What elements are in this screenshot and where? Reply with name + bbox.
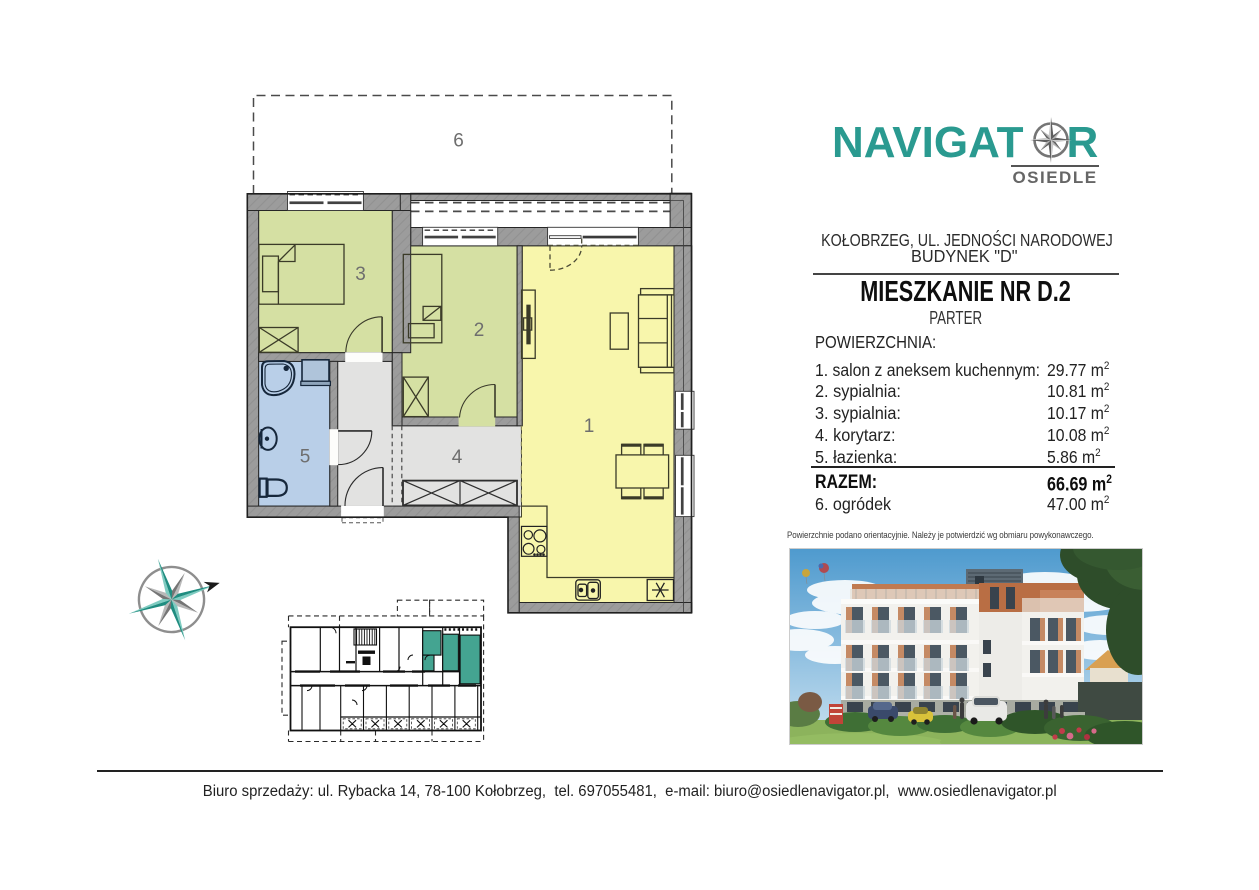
svg-text:3: 3 <box>355 264 366 285</box>
svg-text:4: 4 <box>452 447 463 468</box>
svg-text:2: 2 <box>474 320 485 341</box>
svg-text:1: 1 <box>584 416 595 437</box>
svg-text:5: 5 <box>300 447 311 468</box>
svg-text:6: 6 <box>453 131 464 152</box>
